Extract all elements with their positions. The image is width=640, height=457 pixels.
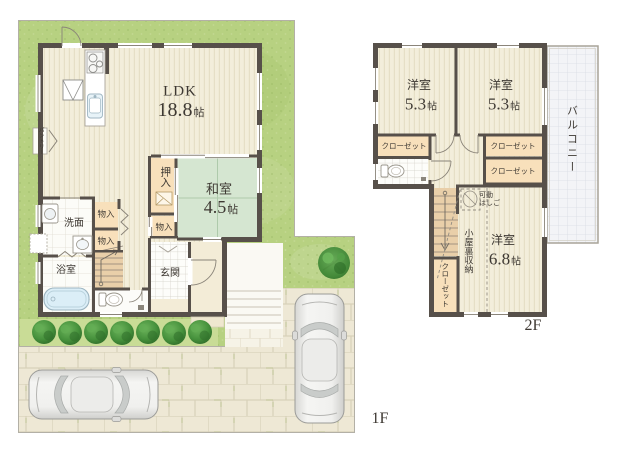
room-label-yoshitsu-large: 洋室: [491, 234, 515, 246]
room-size-ldk-unit: 帖: [194, 108, 205, 119]
room-size-yoshitsu-left-unit: 帖: [427, 103, 437, 113]
room-label-ldk: LDK: [163, 85, 197, 100]
washing-machine-icon: [42, 204, 58, 223]
room-size-washitsu-value: 4.5: [204, 198, 227, 216]
room-size-yoshitsu-right-unit: 帖: [510, 103, 520, 113]
genkan-step: [151, 299, 188, 314]
label-closet-right-lower: クローゼット: [491, 167, 536, 175]
room-label-yoshitsu-left: 洋室: [407, 79, 431, 91]
room-size-ldk-value: 18.8: [158, 100, 193, 120]
bay-window: [30, 234, 47, 253]
car-horizontal: [29, 368, 158, 422]
entrance-approach: [225, 243, 283, 347]
label-balcony: バルコニー: [566, 105, 577, 175]
tree-icon: [318, 247, 350, 279]
room-label-monoire-3: 物入: [155, 223, 172, 232]
porch: [191, 242, 224, 313]
room-size-yoshitsu-left-value: 5.3: [405, 96, 426, 113]
room-label-monoire-2: 物入: [97, 237, 114, 246]
room-size-yoshitsu-large-value: 6.8: [489, 251, 510, 268]
room-size-yoshitsu-right-value: 5.3: [488, 96, 509, 113]
kitchen-sink-icon: [88, 94, 103, 118]
label-closet-right-upper: クローゼット: [491, 142, 536, 150]
oshiire-futon-icon: [156, 192, 172, 205]
room-size-washitsu: 4.5帖: [204, 198, 239, 216]
room-label-genkan: 玄関: [160, 269, 180, 279]
kitchen-counter: [85, 50, 105, 126]
room-label-washitsu: 和室: [206, 183, 232, 196]
bathtub-icon: [44, 288, 89, 310]
vanity-sink-icon: [73, 236, 92, 253]
room-label-monoire-1: 物入: [97, 210, 114, 219]
refrigerator-icon: [63, 80, 83, 100]
room-size-washitsu-unit: 帖: [227, 205, 238, 216]
label-closet-left: クローゼット: [382, 142, 427, 150]
label-ladder-line2: はしご: [479, 199, 500, 207]
room-size-yoshitsu-large: 6.8帖: [489, 251, 521, 268]
floorplan-graphics: [0, 0, 640, 457]
room-label-pantry: パントリー: [37, 127, 43, 155]
room-label-senmen: 洗面: [64, 219, 84, 229]
room-size-yoshitsu-left: 5.3帖: [405, 96, 437, 113]
floorplan-image: LDK 18.8帖 和室 4.5帖 押入 物入 物入 物入 洗面 浴室 玄関 パ…: [0, 0, 640, 457]
room-label-yoshitsu-right: 洋室: [489, 79, 513, 91]
label-ladder: 可動 はしご: [479, 191, 500, 208]
floor-label-2f: 2F: [525, 318, 542, 334]
label-closet-bottom: クローゼット: [441, 263, 449, 308]
car-vertical: [293, 294, 347, 423]
stove-icon: [87, 52, 103, 73]
room-label-oshiire: 押入: [159, 167, 170, 188]
room-size-yoshitsu-right: 5.3帖: [488, 96, 520, 113]
room-label-yokushitsu: 浴室: [56, 266, 76, 276]
label-attic-storage: 小屋裏収納: [464, 229, 473, 274]
room-size-ldk: 18.8帖: [158, 100, 205, 120]
room-size-yoshitsu-large-unit: 帖: [511, 258, 521, 268]
floor-label-1f: 1F: [372, 411, 389, 427]
